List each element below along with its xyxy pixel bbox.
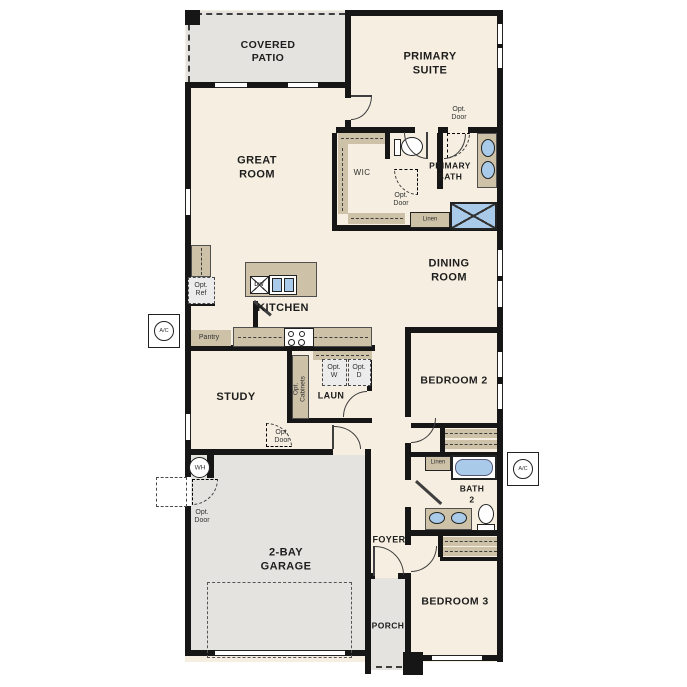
wall [345,10,351,90]
label-pantry: Pantry [199,334,219,342]
door-leaf [426,132,428,159]
opt-door-landing [156,477,187,507]
toilet-tank [477,524,495,531]
wall [405,327,503,333]
wall [332,133,337,225]
wall [385,133,390,159]
room-label-covered-patio: COVERED PATIO [241,39,296,65]
label-linen: Linen [423,217,438,224]
vanity-sink [481,161,495,179]
window [185,189,191,215]
room-label-garage: 2-BAY GARAGE [261,546,312,574]
burner [299,331,305,337]
burner [298,339,305,346]
window [288,82,318,88]
toilet-tank [394,139,401,156]
room-label-porch: PORCH [372,621,405,632]
shelf-line [341,138,383,139]
label-linen: Linen [431,460,446,467]
sink-basin [272,278,282,292]
label-opt-door: Opt. Door [451,106,466,122]
window [497,281,503,307]
window [497,24,503,44]
wall [405,333,411,417]
front-door-leaf [373,546,375,576]
wall [405,507,411,545]
closet-rod [445,444,497,445]
room-label-laundry: LAUN [318,390,345,401]
room-label-bedroom2: BEDROOM 2 [420,374,487,387]
label-opt-dryer: Opt. D [352,364,365,380]
window [215,82,247,88]
room-label-primary-bath: PRIMARY BATH [429,160,471,181]
burner [288,339,295,346]
garage-door-outline [207,582,352,658]
shelf-line [316,355,369,356]
window [185,414,191,440]
vanity-sink [429,512,445,524]
wall [365,449,371,674]
room-label-foyer: FOYER [372,534,405,545]
wall [405,573,411,661]
label-opt-door: Opt. Door [393,192,408,208]
patio-dashed-edge [196,13,345,15]
shower [450,202,497,230]
bathtub-basin [455,459,493,476]
door-leaf [332,425,334,449]
wall [405,443,411,480]
label-ac: A/C [518,466,527,472]
wic-shelf [338,144,348,214]
vanity-sink [481,139,495,157]
label-opt-door: Opt. Door [194,509,209,525]
wall [497,10,503,662]
wall [185,82,191,656]
label-dishwasher: DW [254,282,263,288]
closet-rod [445,433,497,434]
floor-plan: COVERED PATIO PRIMARY SUITE GREAT ROOM D… [0,0,687,687]
shelf-line [201,248,202,275]
label-opt-cabinets: Opt. Cabinets [293,376,308,402]
label-water-heater: WH [195,464,206,471]
room-label-dining-room: DINING ROOM [429,257,470,285]
window [497,250,503,276]
toilet-bowl [478,504,494,524]
wall [345,10,503,16]
shelf-line [342,148,343,211]
room-label-study: STUDY [216,391,255,405]
room-label-kitchen: KITCHEN [257,302,309,316]
closet-rod [445,551,497,552]
window [497,384,503,409]
room-label-primary-suite: PRIMARY SUITE [403,50,456,78]
closet-rod [445,541,497,542]
shelf-line [351,218,403,219]
porch-edge-dashed [376,666,402,668]
burner [288,331,294,337]
room-label-great-room: GREAT ROOM [237,154,277,182]
wall [185,10,200,25]
window [497,352,503,377]
door-leaf [351,95,372,97]
label-opt-washer: Opt. W [327,364,340,380]
vanity-sink [451,512,467,524]
room-label-wic: WIC [354,168,371,178]
room-label-bath2: BATH 2 [460,483,485,504]
room-label-bedroom3: BEDROOM 3 [421,595,488,608]
sink-basin [284,278,294,292]
label-opt-door: Opt. Door [274,429,289,445]
label-opt-ref: Opt. Ref [194,282,207,298]
wall [440,557,502,561]
window [432,655,482,661]
window [497,48,503,68]
wall [247,82,288,88]
wall [318,82,348,88]
label-ac: A/C [159,328,168,334]
